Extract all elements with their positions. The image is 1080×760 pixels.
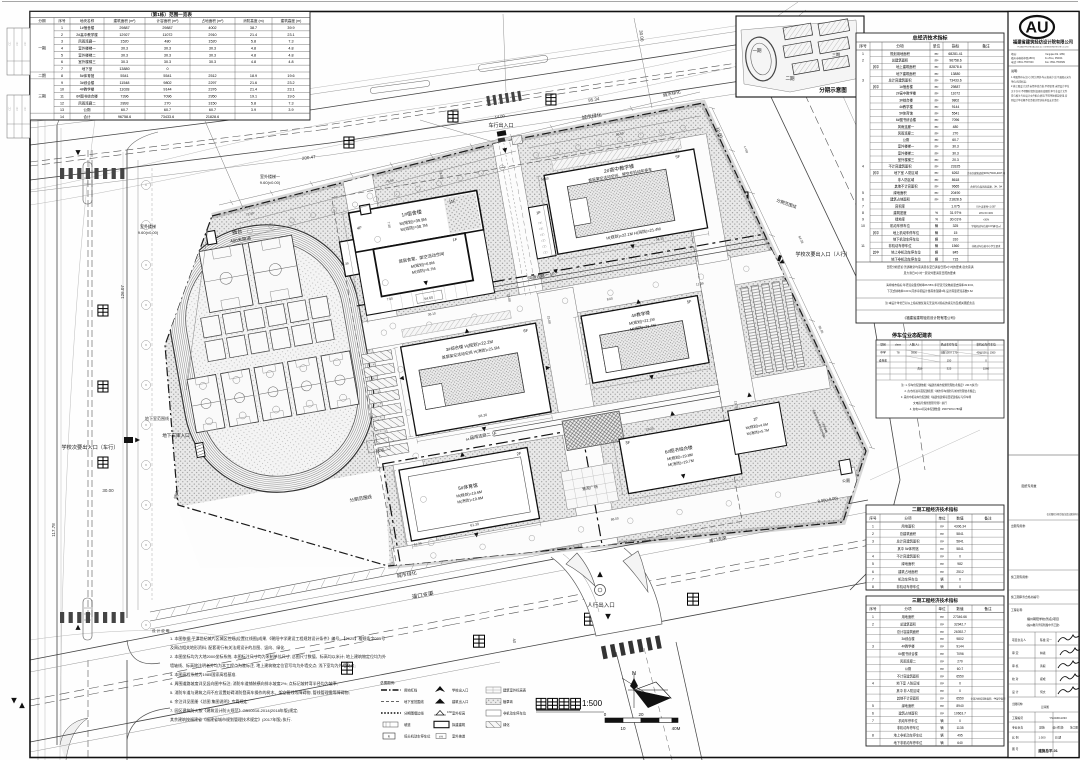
svg-text:绿地面积: 绿地面积: [893, 190, 907, 195]
svg-text:地下车库入口: 地下车库入口: [162, 432, 190, 439]
svg-text:30.3: 30.3: [164, 60, 171, 64]
svg-text:5841: 5841: [956, 532, 964, 536]
svg-text:4.8: 4.8: [288, 53, 293, 57]
svg-text:9.60(±0.00): 9.60(±0.00): [260, 180, 281, 185]
svg-text:325: 325: [947, 367, 952, 371]
svg-text:%: %: [935, 211, 938, 215]
svg-text:325: 325: [953, 224, 959, 228]
svg-text:60.7: 60.7: [957, 667, 964, 671]
svg-text:Fu Zhou, 350001: Fu Zhou, 350001: [1045, 58, 1063, 60]
svg-text:3#综合楼: 3#综合楼: [80, 80, 95, 85]
svg-text:2#高中教学楼: 2#高中教学楼: [896, 91, 917, 96]
svg-text:备注: 备注: [984, 606, 992, 611]
svg-text:不计容建筑面积: 不计容建筑面积: [897, 673, 920, 678]
svg-text:m²: m²: [940, 674, 944, 678]
svg-text:数值: 数值: [956, 606, 964, 611]
svg-text:建筑占地面积: 建筑占地面积: [890, 197, 910, 202]
svg-text:3900: 3900: [911, 351, 918, 355]
svg-text:含停车位及风雨连廊、3#、5#: 含停车位及风雨连廊、3#、5#: [970, 184, 1002, 188]
svg-text:注:本设计单位已对以上指标做优真实无误并对指标的真实性及相关: 注:本设计单位已对以上指标做优真实无误并对指标的真实性及相关图纸负责: [885, 301, 975, 305]
svg-text:m²: m²: [940, 689, 944, 693]
svg-text:60.7: 60.7: [209, 108, 216, 112]
svg-text:5: 5: [61, 53, 63, 57]
svg-text:19.6: 19.6: [287, 74, 294, 78]
svg-text:13: 13: [60, 108, 64, 112]
svg-text:30.3: 30.3: [952, 145, 959, 149]
svg-text:YSJ23011333: YSJ23011333: [1049, 716, 1067, 720]
svg-text:工程编号: 工程编号: [1012, 716, 1023, 720]
svg-text:±%: ±%: [439, 735, 444, 739]
svg-text:480: 480: [953, 125, 959, 129]
svg-text:室外楼梯三: 室外楼梯三: [78, 59, 96, 64]
svg-text:715: 715: [953, 257, 959, 261]
svg-text:□□: □□: [15, 107, 19, 111]
svg-text:福州朝阳学校(暂名)项目: 福州朝阳学校(暂名)项目: [1027, 616, 1059, 621]
svg-text:9144: 9144: [952, 105, 960, 109]
svg-text:分期围墙边线: 分期围墙边线: [404, 711, 424, 716]
svg-text:m²: m²: [940, 711, 944, 715]
svg-text:60.7: 60.7: [164, 108, 171, 112]
svg-text:m²: m²: [940, 667, 944, 671]
svg-text:县审图: 县审图: [1041, 705, 1049, 709]
svg-text:m²: m²: [935, 151, 939, 155]
svg-text:96758.6: 96758.6: [949, 59, 961, 63]
svg-text:1:500: 1:500: [1039, 736, 1046, 740]
svg-text:class: class: [895, 343, 902, 347]
svg-text:学校机动车位按0.07辆/百㎡: 学校机动车位按0.07辆/百㎡: [971, 224, 1001, 228]
svg-text:10: 10: [620, 726, 626, 731]
svg-text:0: 0: [959, 555, 961, 559]
svg-text:非机动车停车位: 非机动车停车位: [888, 243, 912, 248]
svg-text:其中: 其中: [873, 64, 879, 69]
svg-text:其他不计容面积: 其他不计容面积: [897, 696, 920, 701]
svg-text:地上建筑面积: 地上建筑面积: [896, 64, 916, 69]
svg-text:m²: m²: [935, 98, 939, 102]
svg-text:人数(人): 人数(人): [909, 343, 919, 347]
svg-text:三期工程经济技术指标: 三期工程经济技术指标: [912, 597, 958, 604]
svg-text:3: 3: [61, 40, 63, 44]
svg-text:建筑面积 (m²): 建筑面积 (m²): [114, 18, 136, 23]
svg-text:0.8<容积率<1.087: 0.8<容积率<1.087: [976, 204, 996, 208]
svg-text:学校出入口: 学校出入口: [452, 688, 468, 693]
svg-text:出图机构:: 出图机构:: [1012, 702, 1023, 706]
svg-text:29887: 29887: [162, 26, 172, 30]
svg-text:0: 0: [959, 689, 961, 693]
svg-text:11: 11: [60, 95, 64, 99]
svg-text:5: 5: [872, 704, 874, 708]
svg-text:总经济技术指标: 总经济技术指标: [912, 35, 947, 42]
svg-text:20.3: 20.3: [952, 158, 959, 162]
svg-text:m²: m²: [935, 138, 939, 142]
svg-text:备注: 备注: [982, 44, 990, 49]
svg-text:845: 845: [953, 251, 959, 255]
svg-text:地下室范围线: 地下室范围线: [404, 699, 424, 704]
svg-text:5841: 5841: [956, 547, 964, 551]
svg-text:4.8: 4.8: [251, 47, 256, 51]
svg-text:19.6: 19.6: [287, 95, 294, 99]
svg-text:27346.66: 27346.66: [953, 615, 967, 619]
svg-text:人行出入口: 人行出入口: [587, 601, 615, 609]
svg-text:1135: 1135: [956, 726, 963, 730]
svg-text:2: 2: [61, 33, 63, 37]
svg-text:9802: 9802: [952, 98, 960, 102]
svg-text:3. 采用中机动车位配建按《福建省建筑项目配建指标与停车场: 3. 采用中机动车位配建按《福建省建筑项目配建指标与停车场: [901, 395, 972, 399]
svg-text:林森: 林森: [1040, 651, 1046, 655]
svg-text:m²: m²: [935, 158, 939, 162]
svg-text:10: 10: [60, 88, 64, 92]
svg-text:4. 周围道路坡度详见竖向图中标注; 消防车道铺装横向排水坡: 4. 周围道路坡度详见竖向图中标注; 消防车道铺装横向排水坡度2%; 点标记坡转…: [170, 680, 338, 686]
svg-text:6: 6: [61, 60, 63, 64]
svg-text:0: 0: [959, 577, 961, 581]
svg-text:m²: m²: [935, 105, 939, 109]
svg-text:墙轴线、标高除注明者外均为本工程点为准标注, 地上建筑物定位: 墙轴线、标高除注明者外均为本工程点为准标注, 地上建筑物定位官写均为外墙交点; …: [170, 662, 356, 668]
svg-text:用地面积: 用地面积: [901, 523, 915, 528]
svg-text:5541: 5541: [120, 74, 128, 78]
svg-text:2512: 2512: [208, 74, 216, 78]
svg-text:不计容建筑面积: 不计容建筑面积: [888, 164, 912, 169]
svg-text:注: 1. 停车位配建依据《福建省城市规划管理技术规定》20: 注: 1. 停车位配建依据《福建省城市规划管理技术规定》2017(执行):: [901, 383, 979, 387]
svg-text:26392.7: 26392.7: [954, 630, 966, 634]
svg-text:21.4: 21.4: [250, 33, 257, 37]
svg-text:m²: m²: [940, 570, 944, 574]
svg-text:审 定: 审 定: [1012, 651, 1019, 655]
svg-text:及周边相关地形资料; 配套现行有关法规设计的总图、竖向、绿化: 及周边相关地形资料; 配套现行有关法规设计的总图、竖向、绿化.: [170, 644, 285, 650]
svg-text:机动车停车位: 机动车停车位: [898, 718, 918, 723]
svg-text:图 号: 图 号: [1012, 747, 1019, 751]
svg-text:m²: m²: [940, 704, 944, 708]
svg-text:6550: 6550: [956, 697, 964, 701]
svg-text:1: 1: [872, 524, 874, 528]
svg-text:建筑占地面积: 建筑占地面积: [898, 569, 918, 574]
svg-text:Yangqiao Rd. 188#,: Yangqiao Rd. 188#,: [1045, 54, 1065, 56]
svg-text:室外楼梯一: 室外楼梯一: [898, 144, 915, 149]
svg-text:9: 9: [61, 81, 63, 85]
svg-text:其中 5#体育馆: 其中 5#体育馆: [897, 546, 919, 551]
svg-text:单位)均需核实;: 单位)均需核实;: [1011, 80, 1027, 84]
svg-text:一期: 一期: [38, 46, 46, 51]
svg-text:建筑密度: 建筑密度: [893, 210, 907, 215]
svg-text:4: 4: [862, 165, 864, 169]
svg-text:270: 270: [953, 131, 959, 135]
svg-text:7: 7: [862, 204, 864, 208]
svg-text:9802: 9802: [956, 637, 964, 641]
svg-text:5541: 5541: [163, 74, 171, 78]
svg-text:3: 3: [872, 540, 874, 544]
svg-text:8: 8: [862, 211, 864, 215]
svg-text:足大寒日3小时一居室外要满足日照的要求.: 足大寒日3小时一居室外要满足日照的要求.: [904, 271, 957, 275]
svg-text:6: 6: [872, 570, 874, 574]
svg-text:m²: m²: [935, 92, 939, 96]
svg-text:1#宿舍楼: 1#宿舍楼: [80, 25, 95, 30]
svg-text:11028: 11028: [120, 88, 130, 92]
svg-text:7.3: 7.3: [288, 40, 293, 44]
svg-text:3#综合楼: 3#综合楼: [899, 97, 913, 102]
svg-text:11072: 11072: [951, 92, 960, 96]
svg-text:3. 本图高程系统为1985国家高程基准.: 3. 本图高程系统为1985国家高程基准.: [170, 671, 236, 677]
svg-text:总建筑面积: 总建筑面积: [900, 531, 917, 536]
svg-text:7. 园区建筑防火按《建筑设计防火规范》GB50016-20: 7. 园区建筑防火按《建筑设计防火规范》GB50016-2014(2018年版)…: [170, 707, 298, 713]
svg-text:6#图书综合楼: 6#图书综合楼: [896, 117, 917, 122]
svg-text:7: 7: [61, 67, 63, 71]
svg-text:9665: 9665: [952, 184, 960, 188]
svg-text:室外楼梯二: 室外楼梯二: [78, 52, 96, 57]
svg-text:总建筑面积: 总建筑面积: [892, 58, 909, 63]
svg-text:2950: 2950: [208, 95, 216, 99]
svg-text:m²: m²: [935, 112, 939, 116]
svg-text:m²: m²: [940, 532, 944, 536]
svg-text:11072: 11072: [163, 33, 173, 37]
svg-text:(福州教育学院附属中学迁建): (福州教育学院附属中学迁建): [1027, 623, 1060, 627]
svg-text:4: 4: [872, 682, 874, 686]
svg-text:1560: 1560: [983, 367, 990, 371]
svg-text:设计阶段: 设计阶段: [1052, 726, 1063, 730]
svg-text:地下非机动车停车位: 地下非机动车停车位: [891, 256, 921, 261]
svg-text:1. 本图依据:平潭世纪城片区城区控规(位置红线图)成果,《: 1. 本图依据:平潭世纪城片区城区控规(位置红线图)成果,《朝阳中学建设工程规划…: [170, 635, 385, 641]
svg-text:其中: 其中: [873, 84, 879, 89]
svg-text:30.3: 30.3: [209, 47, 216, 51]
svg-text:5.8: 5.8: [251, 40, 256, 44]
svg-text:20: 20: [638, 712, 644, 717]
svg-text:2376: 2376: [208, 88, 216, 92]
svg-text:1: 1: [862, 52, 864, 56]
svg-text:10663.7: 10663.7: [954, 711, 966, 715]
svg-text:3#综合楼: 3#综合楼: [901, 636, 915, 641]
svg-text:风雨连廊一: 风雨连廊一: [898, 124, 915, 129]
svg-text:8: 8: [61, 74, 63, 78]
svg-text:11548: 11548: [120, 81, 130, 85]
svg-text:30.3: 30.3: [121, 60, 128, 64]
svg-text:2: 2: [872, 532, 874, 536]
svg-text:6#图书综合楼: 6#图书综合楼: [76, 94, 98, 99]
svg-text:□□: □□: [23, 42, 27, 46]
svg-text:□□: □□: [23, 107, 27, 111]
svg-text:m²: m²: [935, 65, 939, 69]
svg-text:4#教学楼: 4#教学楼: [899, 104, 913, 109]
svg-text:29887: 29887: [951, 85, 961, 89]
svg-text:室外楼梯二: 室外楼梯二: [898, 150, 915, 155]
svg-text:绿化: 绿化: [503, 722, 510, 727]
svg-text:地上机动车停车位: 地上机动车停车位: [893, 230, 920, 235]
svg-text:270: 270: [164, 101, 170, 105]
svg-text:30.01%: 30.01%: [950, 218, 962, 222]
svg-text:FUJIAN PROVINCIAL A.&T.&L.T. D: FUJIAN PROVINCIAL A.&T.&L.T. DESIGN INST…: [1017, 46, 1069, 49]
svg-text:5: 5: [872, 562, 874, 566]
svg-text:下沉式绿地率3.01%,同步审阅设计暴雨重现期3年,设计雨量: 下沉式绿地率3.01%,同步审阅设计暴雨重现期3年,设计雨量径流系数0.62: [887, 289, 973, 293]
svg-text:7096: 7096: [163, 95, 171, 99]
svg-text:非机动车停车位: 非机动车停车位: [976, 343, 996, 347]
svg-text:9144: 9144: [956, 645, 964, 649]
svg-text:2512: 2512: [956, 570, 964, 574]
svg-text:5. 消防车道与建筑之间不应设置妨碍消防登高车操作的树木、架: 5. 消防车道与建筑之间不应设置妨碍消防登高车操作的树木、架空管线等障碍物, 管…: [170, 689, 350, 695]
svg-text:4002: 4002: [208, 26, 216, 30]
svg-text:消防高度 (m): 消防高度 (m): [243, 18, 264, 23]
svg-text:室外坡道: 室外坡道: [452, 734, 466, 739]
svg-text:其中: 其中: [873, 170, 879, 175]
svg-text:40辆/100人 1560: 40辆/100人 1560: [977, 351, 997, 355]
svg-text:7: 7: [872, 577, 874, 581]
svg-text:73433.6: 73433.6: [949, 78, 961, 82]
svg-text:郑成: 郑成: [1040, 677, 1046, 681]
svg-text:m²: m²: [940, 524, 944, 528]
svg-text:机动车停车位: 机动车停车位: [898, 576, 918, 581]
svg-text:其他不计容面积: 其他不计容面积: [894, 183, 918, 188]
svg-text:非机动车位按中小学生要求: 非机动车位按中小学生要求: [972, 244, 1001, 248]
svg-text:绿地面积: 绿地面积: [901, 561, 915, 566]
svg-text:m²: m²: [935, 78, 939, 82]
svg-text:30.00: 30.00: [102, 488, 114, 493]
svg-text:1:500: 1:500: [582, 699, 603, 708]
svg-text:310: 310: [953, 237, 959, 241]
svg-text:10: 10: [861, 224, 865, 228]
svg-text:其中: 其中: [873, 230, 879, 235]
svg-text:0: 0: [959, 682, 961, 686]
svg-text:14: 14: [60, 115, 64, 119]
svg-text:地上非机动车停车位: 地上非机动车停车位: [891, 250, 921, 255]
svg-text:2297: 2297: [208, 81, 216, 85]
svg-text:3.9: 3.9: [251, 108, 256, 112]
svg-text:0: 0: [959, 719, 961, 723]
svg-text:设 计 说 明: 设 计 说 明: [152, 628, 170, 633]
svg-text:8618: 8618: [952, 178, 960, 182]
svg-text:用地面积: 用地面积: [902, 614, 916, 619]
svg-text:机动车停车位: 机动车停车位: [890, 223, 910, 228]
svg-text:3: 3: [872, 645, 874, 649]
svg-text:总计容建筑面积: 总计容建筑面积: [888, 77, 912, 82]
svg-text:分项: 分项: [896, 44, 904, 49]
svg-text:非机动车停车位: 非机动车停车位: [896, 584, 920, 589]
svg-text:m²: m²: [935, 125, 939, 129]
svg-text:公厕: 公厕: [842, 477, 850, 483]
svg-text:单位: 单位: [938, 606, 946, 611]
svg-text:150: 150: [947, 359, 952, 363]
svg-text:m²: m²: [940, 540, 944, 544]
svg-text:12927: 12927: [119, 33, 129, 37]
svg-text:室外楼梯: 室外楼梯: [140, 223, 156, 229]
svg-text:m²: m²: [935, 198, 939, 202]
svg-text:480: 480: [164, 40, 170, 44]
svg-text:日 期: 日 期: [1055, 736, 1062, 740]
svg-text:海绵城市指标:年径流总量控制率66.55%,年径流污染物总量: 海绵城市指标:年径流总量控制率66.55%,年径流污染物总量去除率49.91%,: [886, 283, 974, 287]
svg-text:公厕: 公厕: [905, 667, 911, 671]
svg-text:8: 8: [872, 585, 874, 589]
svg-text:（第1栋）范围一览表: （第1栋）范围一览表: [148, 11, 192, 18]
svg-text:校 对: 校 对: [1012, 677, 1019, 681]
svg-text:0: 0: [166, 67, 168, 71]
svg-text:总建筑面积: 总建筑面积: [900, 621, 917, 626]
svg-text:23.2: 23.2: [287, 81, 294, 85]
svg-text:坡道: 坡道: [404, 722, 411, 727]
svg-text:公厕: 公厕: [84, 107, 91, 112]
svg-text:m²: m²: [940, 682, 944, 686]
svg-text:4: 4: [872, 555, 874, 559]
svg-text:地下机动车停车位: 地下机动车停车位: [893, 236, 920, 241]
svg-text:9: 9: [862, 218, 864, 222]
svg-text:公厕: 公厕: [903, 138, 910, 142]
svg-text:学校次要出入口（车行）: 学校次要出入口（车行）: [61, 443, 118, 451]
svg-text:福州市杨桥中路188号: 福州市杨桥中路188号: [1011, 56, 1036, 60]
svg-text:m²: m²: [940, 652, 944, 656]
svg-text:21.6: 21.6: [250, 81, 257, 85]
svg-text:29887: 29887: [119, 26, 129, 30]
svg-text:地块名称: 地块名称: [80, 18, 95, 23]
svg-text:5#体育馆: 5#体育馆: [899, 111, 913, 116]
svg-text:m²: m²: [940, 622, 944, 626]
svg-text:m²: m²: [935, 118, 939, 122]
svg-text:7096: 7096: [956, 652, 964, 656]
svg-text:文字许可,不得翻印复制变更修改图纸;本专业设计文件: 文字许可,不得翻印复制变更修改图纸;本专业设计文件: [1011, 89, 1068, 93]
svg-text:序号: 序号: [859, 44, 867, 49]
svg-text:地下建筑面积: 地下建筑面积: [896, 71, 916, 76]
svg-text:建施总平-01: 建施总平-01: [1037, 748, 1058, 753]
svg-text:比 例: 比 例: [1012, 736, 1019, 740]
svg-text:6: 6: [862, 198, 864, 202]
svg-text:规划用地面积: 规划用地面积: [890, 51, 910, 56]
svg-text:15: 15: [954, 231, 958, 235]
svg-text:60.7: 60.7: [121, 108, 128, 112]
svg-text:黄毅: 黄毅: [1040, 664, 1046, 668]
svg-text:总计容建筑面积: 总计容建筑面积: [897, 629, 920, 634]
svg-text:AU: AU: [1025, 20, 1048, 37]
svg-text:13880: 13880: [951, 72, 961, 76]
svg-text:23.1: 23.1: [287, 88, 294, 92]
svg-text:设 计: 设 计: [1012, 690, 1019, 694]
svg-text:5541: 5541: [952, 112, 960, 116]
svg-text:m²: m²: [940, 637, 944, 641]
svg-text:m²: m²: [935, 52, 939, 56]
svg-text:其中: 其中: [873, 250, 879, 255]
svg-text:3: 3: [862, 78, 864, 82]
svg-text:30.3: 30.3: [121, 47, 128, 51]
svg-text:文电指导规划管理导则》执行: 文电指导规划管理导则》执行: [913, 401, 947, 405]
svg-text:m²: m²: [935, 59, 939, 63]
svg-text:福建省建筑轻纺设计院有限公司: 福建省建筑轻纺设计院有限公司: [1012, 39, 1073, 46]
svg-text:k: k: [388, 735, 390, 739]
svg-text:低头机动车停车位: 低头机动车停车位: [404, 734, 431, 739]
svg-text:何文: 何文: [1040, 690, 1046, 694]
svg-text:30.3: 30.3: [952, 151, 959, 155]
svg-text:3.9: 3.9: [288, 108, 293, 112]
svg-text:工程名称:: 工程名称:: [1011, 608, 1023, 612]
svg-text:风雨连廊二: 风雨连廊二: [898, 130, 915, 135]
svg-text:2.施工图设计文件未经审查合格,不得使用;未经设计单位: 2.施工图设计文件未经审查合格,不得使用;未经设计单位: [1011, 84, 1070, 88]
svg-text:□□: □□: [8, 42, 12, 46]
svg-text:1520: 1520: [120, 40, 128, 44]
svg-text:30.3: 30.3: [209, 60, 216, 64]
svg-text:4#教学楼: 4#教学楼: [901, 644, 915, 649]
svg-text:出图专用章:: 出图专用章:: [1011, 524, 1026, 528]
svg-text:施工图: 施工图: [1070, 726, 1078, 730]
svg-text:建施: 建施: [1039, 726, 1045, 730]
svg-text:1: 1: [61, 26, 63, 30]
svg-text:30.3: 30.3: [164, 53, 171, 57]
svg-text:地址:: 地址:: [1011, 52, 1017, 56]
svg-text:1#宿舍楼: 1#宿舍楼: [899, 84, 913, 89]
svg-text:二期: 二期: [38, 73, 46, 78]
svg-text:地下室范围线: 地下室范围线: [145, 415, 169, 421]
svg-text:82878.6: 82878.6: [949, 65, 961, 69]
svg-text:机动车停车位: 机动车停车位: [941, 343, 958, 347]
svg-text:计容面积 (m²): 计容面积 (m²): [157, 18, 179, 23]
svg-text:《福建省建筑轻纺设计院有限公司》: 《福建省建筑轻纺设计院有限公司》: [903, 315, 957, 320]
svg-text:1.075: 1.075: [951, 204, 960, 208]
svg-text:m²: m²: [935, 171, 939, 175]
svg-text:126.07: 126.07: [120, 285, 125, 299]
svg-text:序号: 序号: [869, 516, 877, 521]
svg-text:m²: m²: [935, 72, 939, 76]
svg-text:合计: 合计: [917, 367, 923, 371]
svg-text:施工图审查合格书编号:: 施工图审查合格书编号:: [1011, 595, 1040, 599]
svg-text:建筑占地面积: 建筑占地面积: [898, 710, 918, 715]
